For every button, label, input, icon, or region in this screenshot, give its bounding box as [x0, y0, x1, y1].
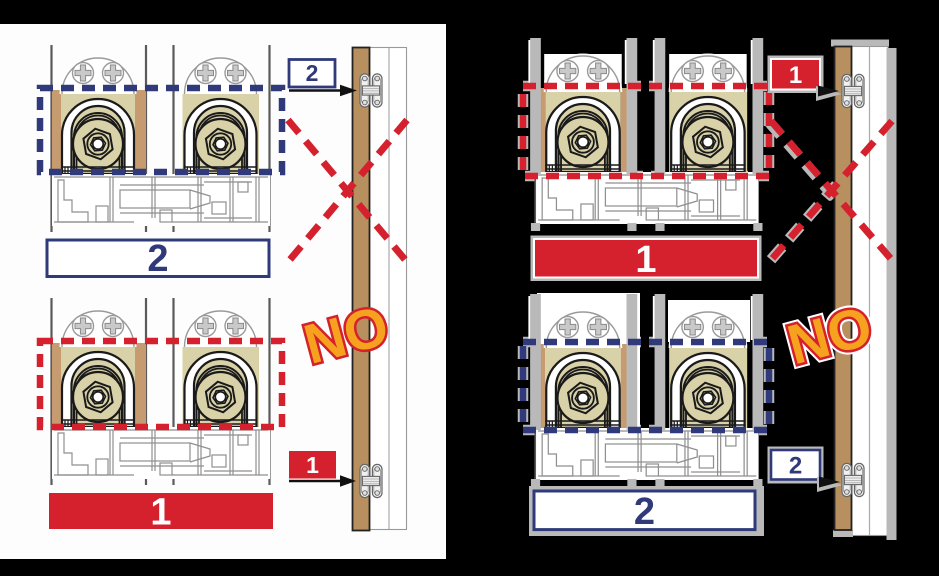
svg-text:1: 1: [635, 239, 656, 281]
svg-text:1: 1: [306, 452, 319, 478]
svg-text:2: 2: [789, 453, 802, 480]
svg-text:2: 2: [147, 238, 168, 280]
svg-text:2: 2: [306, 60, 319, 86]
svg-text:1: 1: [150, 492, 171, 534]
svg-text:1: 1: [789, 62, 802, 89]
svg-text:2: 2: [634, 491, 655, 533]
